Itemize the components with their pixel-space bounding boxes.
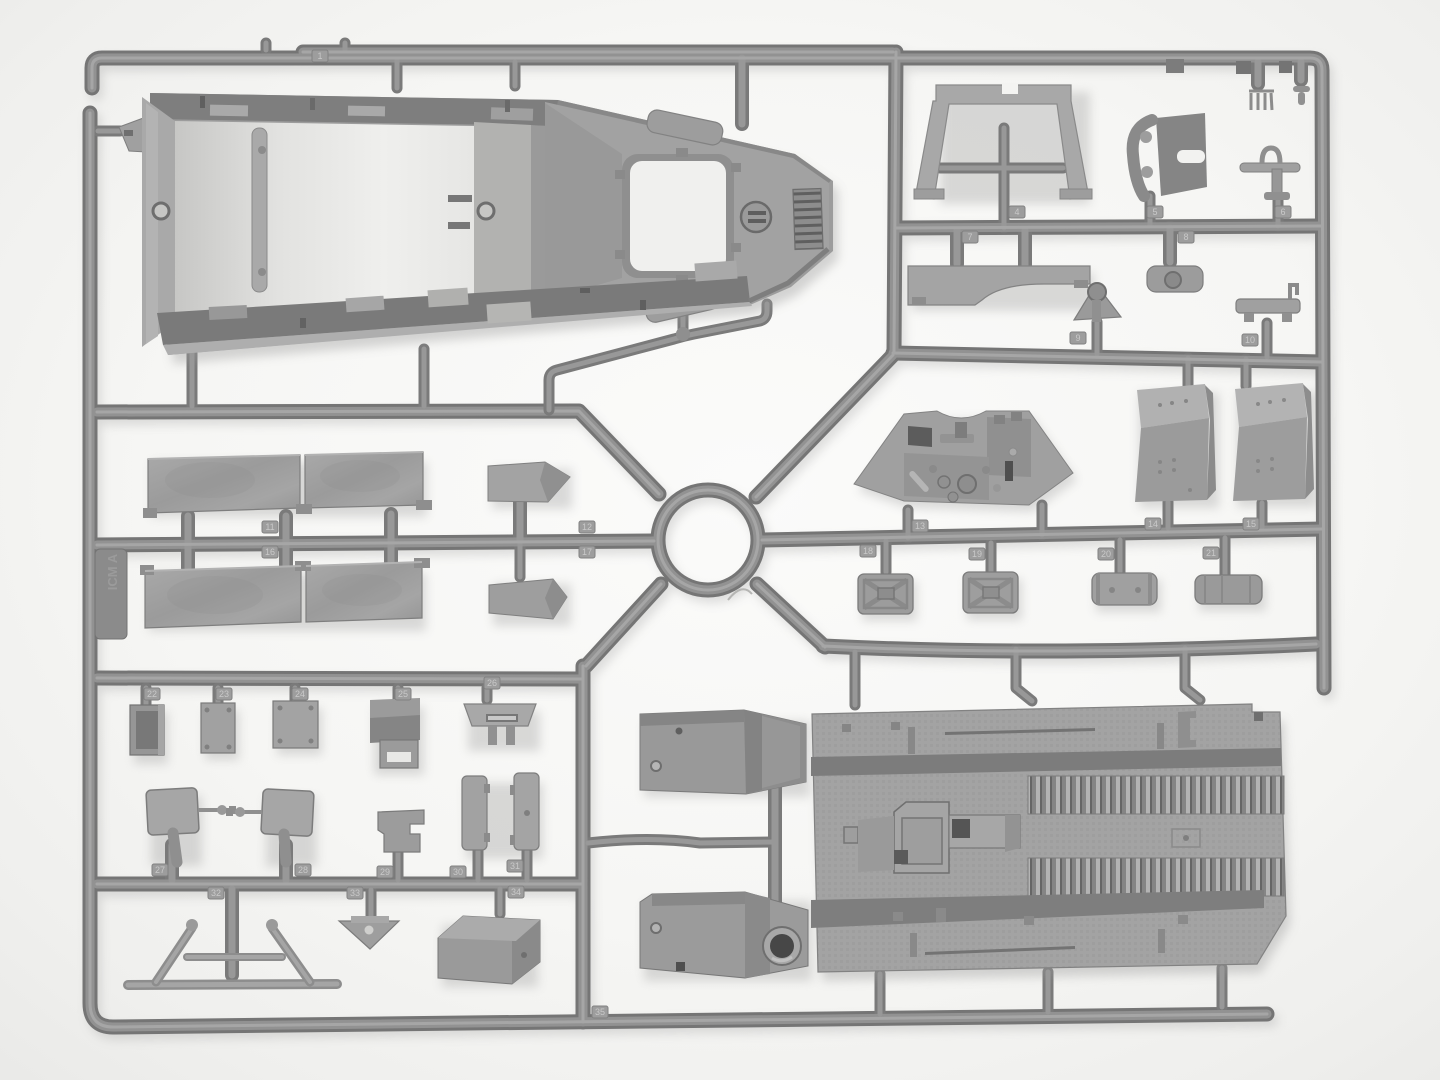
- svg-text:4: 4: [1014, 207, 1019, 217]
- svg-text:15: 15: [1246, 519, 1256, 529]
- svg-text:5: 5: [1152, 207, 1157, 217]
- svg-text:23: 23: [219, 689, 229, 699]
- svg-text:35: 35: [595, 1007, 605, 1017]
- svg-text:31: 31: [510, 861, 520, 871]
- svg-text:ICM A: ICM A: [105, 553, 120, 590]
- svg-text:24: 24: [295, 689, 305, 699]
- svg-text:9: 9: [1075, 333, 1080, 343]
- svg-text:30: 30: [453, 867, 463, 877]
- svg-text:19: 19: [972, 549, 982, 559]
- svg-text:20: 20: [1101, 549, 1111, 559]
- svg-text:1: 1: [317, 51, 322, 61]
- svg-text:34: 34: [511, 887, 521, 897]
- svg-text:6: 6: [1280, 207, 1285, 217]
- svg-text:21: 21: [1206, 548, 1216, 558]
- svg-text:17: 17: [582, 547, 592, 557]
- svg-text:16: 16: [265, 547, 275, 557]
- svg-text:11: 11: [265, 522, 274, 532]
- svg-text:10: 10: [1245, 335, 1255, 345]
- svg-text:28: 28: [298, 865, 308, 875]
- svg-text:32: 32: [211, 888, 221, 898]
- svg-text:14: 14: [1148, 519, 1158, 529]
- svg-text:27: 27: [155, 865, 165, 875]
- svg-text:12: 12: [582, 522, 592, 532]
- svg-text:25: 25: [398, 689, 408, 699]
- svg-text:26: 26: [487, 678, 497, 688]
- svg-text:8: 8: [1183, 232, 1188, 242]
- svg-text:18: 18: [863, 546, 873, 556]
- svg-text:22: 22: [147, 689, 157, 699]
- svg-text:33: 33: [350, 888, 360, 898]
- svg-text:13: 13: [915, 521, 925, 531]
- svg-text:29: 29: [380, 867, 390, 877]
- svg-text:7: 7: [967, 232, 972, 242]
